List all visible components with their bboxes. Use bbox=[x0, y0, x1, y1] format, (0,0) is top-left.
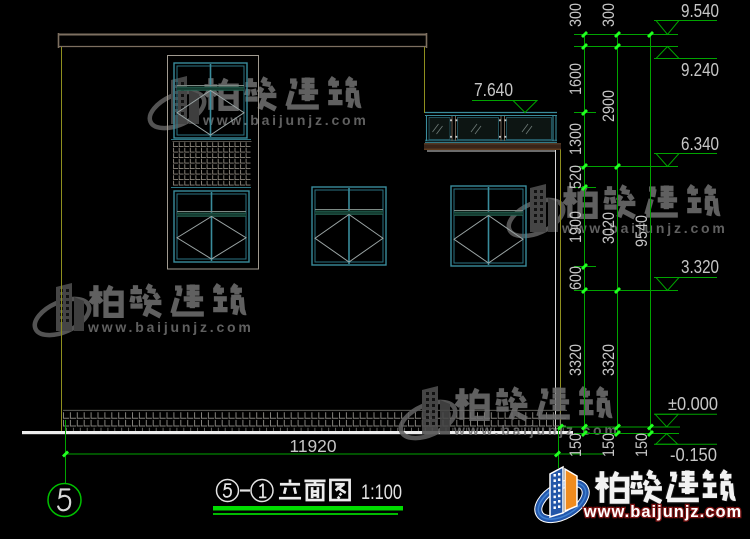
svg-text:11920: 11920 bbox=[290, 436, 337, 456]
svg-text:150: 150 bbox=[599, 433, 618, 457]
svg-text:520: 520 bbox=[566, 165, 585, 189]
svg-text:7.640: 7.640 bbox=[474, 79, 513, 100]
svg-text:3020: 3020 bbox=[599, 212, 618, 244]
svg-text:2900: 2900 bbox=[599, 90, 618, 122]
svg-text:3320: 3320 bbox=[566, 344, 585, 376]
svg-text:150: 150 bbox=[566, 433, 585, 457]
svg-text:300: 300 bbox=[599, 3, 618, 27]
svg-text:6.340: 6.340 bbox=[681, 133, 719, 154]
svg-text:www.baijunjz.com: www.baijunjz.com bbox=[583, 503, 742, 521]
svg-text:1300: 1300 bbox=[566, 123, 585, 155]
svg-text:150: 150 bbox=[632, 433, 651, 457]
svg-text:9540: 9540 bbox=[632, 215, 651, 247]
svg-text:www.baijunjz.com: www.baijunjz.com bbox=[202, 112, 369, 128]
svg-text:600: 600 bbox=[566, 266, 585, 290]
svg-text:3.320: 3.320 bbox=[681, 256, 719, 277]
svg-text:www.baijunjz.com: www.baijunjz.com bbox=[453, 422, 620, 438]
svg-text:1900: 1900 bbox=[566, 211, 585, 243]
svg-text:300: 300 bbox=[566, 3, 585, 27]
svg-text:±0.000: ±0.000 bbox=[668, 393, 718, 414]
svg-text:9.240: 9.240 bbox=[681, 59, 719, 80]
svg-text:-0.150: -0.150 bbox=[670, 444, 717, 465]
svg-text:1600: 1600 bbox=[566, 63, 585, 95]
svg-text:9.540: 9.540 bbox=[681, 0, 719, 21]
svg-text:1:100: 1:100 bbox=[361, 481, 402, 504]
svg-text:3320: 3320 bbox=[599, 344, 618, 376]
svg-text:www.baijunjz.com: www.baijunjz.com bbox=[87, 319, 254, 335]
